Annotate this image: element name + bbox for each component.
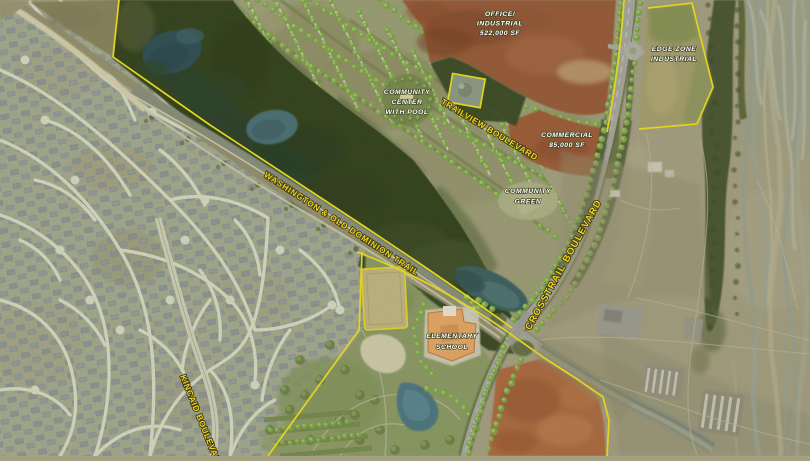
svg-text:CENTER: CENTER <box>392 99 423 106</box>
svg-text:INDUSTRIAL: INDUSTRIAL <box>651 56 697 63</box>
svg-text:GREEN: GREEN <box>515 199 542 206</box>
svg-text:OFFICE/: OFFICE/ <box>485 11 516 18</box>
svg-text:SCHOOL: SCHOOL <box>436 344 468 351</box>
svg-text:COMMUNITY: COMMUNITY <box>384 89 431 96</box>
svg-text:WITH POOL: WITH POOL <box>385 109 428 116</box>
svg-text:EDGE ZONE: EDGE ZONE <box>652 46 697 53</box>
svg-text:COMMUNITY: COMMUNITY <box>505 188 552 195</box>
svg-text:85,000 SF: 85,000 SF <box>549 142 585 149</box>
svg-text:COMMERCIAL: COMMERCIAL <box>541 132 593 139</box>
svg-text:INDUSTRIAL: INDUSTRIAL <box>477 21 523 28</box>
svg-text:ELEMENTARY: ELEMENTARY <box>426 333 478 340</box>
svg-text:522,000 SF: 522,000 SF <box>480 30 520 37</box>
